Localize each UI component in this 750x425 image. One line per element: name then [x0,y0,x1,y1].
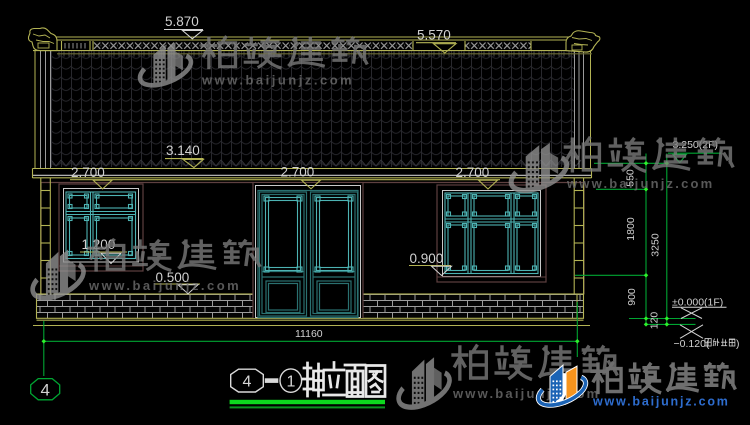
svg-text:3.140: 3.140 [166,143,200,158]
svg-text:4: 4 [243,374,252,391]
svg-text:5.870: 5.870 [165,14,199,29]
svg-text:3250: 3250 [650,233,662,257]
svg-text:2.700: 2.700 [71,165,105,180]
svg-text:www.baijunjz.com: www.baijunjz.com [88,278,241,293]
svg-text:11160: 11160 [295,328,323,340]
svg-text:±0.000(1F): ±0.000(1F) [672,297,723,309]
svg-text:www.baijunjz.com: www.baijunjz.com [566,176,714,191]
svg-text:2.700: 2.700 [281,165,315,180]
svg-text:1: 1 [287,374,296,391]
svg-text:1800: 1800 [625,217,637,241]
svg-text:2.700: 2.700 [456,165,490,180]
svg-text:www.baijunjz.com: www.baijunjz.com [201,73,354,88]
svg-text:−0.120(: −0.120( [674,338,710,350]
svg-text:120: 120 [649,312,661,330]
svg-text:900: 900 [626,288,638,306]
svg-text:www.baijunjz.com: www.baijunjz.com [592,395,730,409]
svg-text:5.570: 5.570 [417,28,451,43]
svg-text:4: 4 [40,381,49,400]
svg-text:): ) [736,338,740,350]
svg-text:0.900: 0.900 [410,251,444,266]
